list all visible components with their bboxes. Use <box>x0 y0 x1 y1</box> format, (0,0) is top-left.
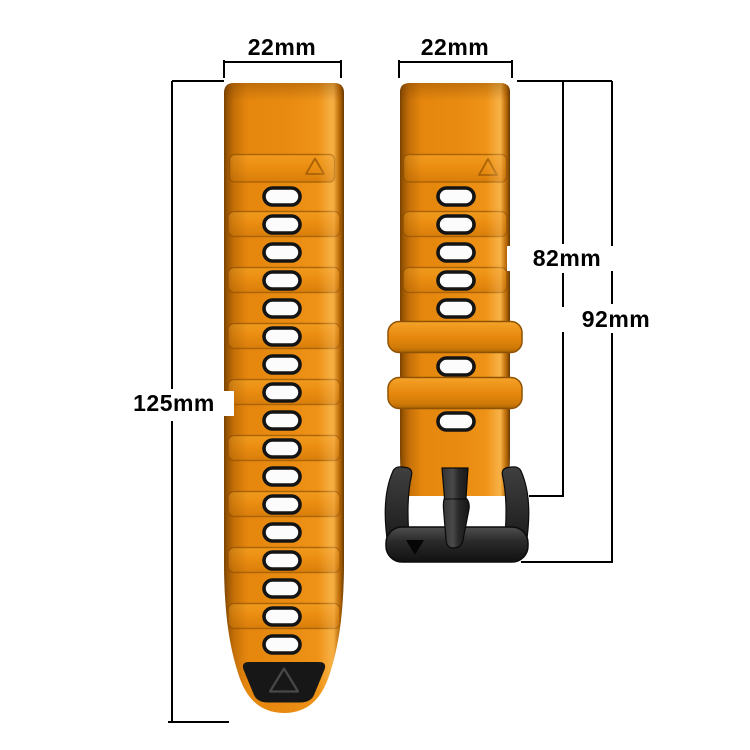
strap-hole <box>438 358 474 375</box>
strap-hole <box>264 216 300 233</box>
watch-strap-dimension-diagram: 22mm 22mm 125mm 82mm 92mm <box>0 0 750 750</box>
right-strap <box>388 83 522 503</box>
right-lug-shade <box>400 83 510 101</box>
strap-hole <box>264 188 300 205</box>
buckle <box>385 467 528 562</box>
strap-hole <box>438 413 474 430</box>
strap-hole <box>264 580 300 597</box>
strap-hole <box>438 272 474 289</box>
strap-graphics <box>0 0 750 750</box>
label-left-strap-width: 22mm <box>222 35 342 60</box>
strap-hole <box>264 412 300 429</box>
left-lug-shade <box>224 83 344 101</box>
left-edge-shade-right <box>318 83 344 715</box>
label-left-strap-length: 125mm <box>114 391 234 416</box>
strap-hole <box>264 272 300 289</box>
label-right-strap-length-92: 92mm <box>556 307 676 332</box>
right-edge-shade-right <box>486 83 510 503</box>
left-strap <box>224 83 344 715</box>
right-edge-shade-left <box>400 83 422 503</box>
strap-hole <box>438 188 474 205</box>
strap-hole <box>264 440 300 457</box>
keeper-loop <box>388 378 522 409</box>
strap-hole <box>264 244 300 261</box>
strap-hole <box>264 496 300 513</box>
keeper-loop <box>388 322 522 353</box>
strap-hole <box>264 328 300 345</box>
label-right-strap-length-82: 82mm <box>507 246 627 271</box>
strap-hole <box>264 356 300 373</box>
strap-hole <box>264 524 300 541</box>
strap-hole <box>438 244 474 261</box>
strap-hole <box>438 216 474 233</box>
strap-hole <box>264 468 300 485</box>
strap-hole <box>438 300 474 317</box>
label-right-strap-width: 22mm <box>395 35 515 60</box>
strap-hole <box>264 384 300 401</box>
strap-hole <box>264 300 300 317</box>
strap-hole <box>264 636 300 653</box>
strap-hole <box>264 552 300 569</box>
strap-hole <box>264 608 300 625</box>
